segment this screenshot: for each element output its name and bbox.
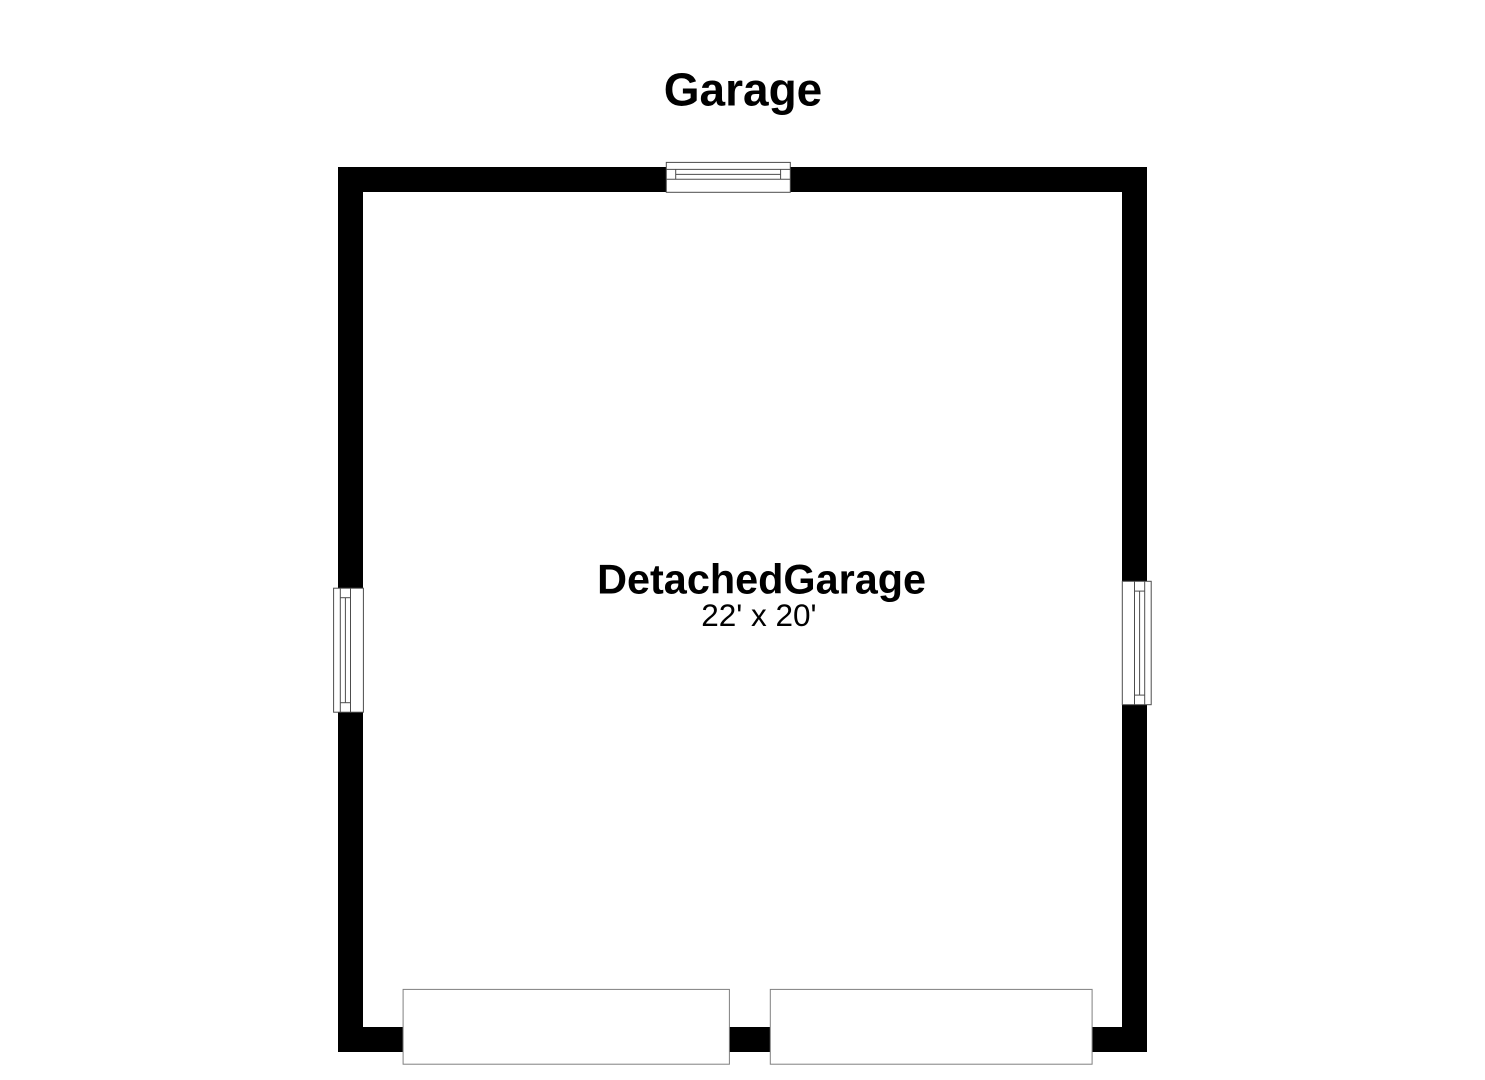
svg-text:Garage: Garage: [664, 64, 823, 116]
svg-text:22' x 20': 22' x 20': [701, 597, 816, 633]
svg-text:DetachedGarage: DetachedGarage: [597, 557, 926, 603]
